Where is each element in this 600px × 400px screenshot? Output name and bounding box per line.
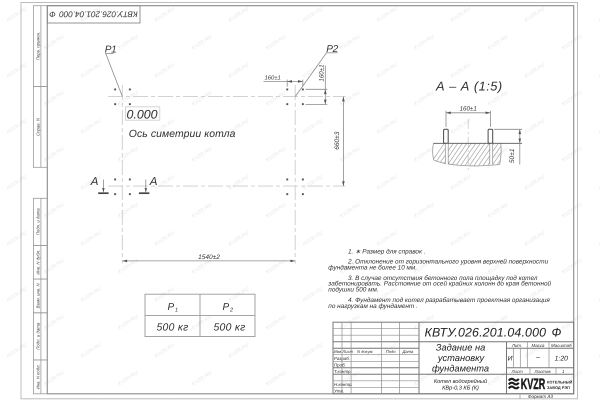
svg-text:A: A <box>90 176 99 188</box>
svg-text:–: – <box>535 354 540 361</box>
svg-text:A: A <box>149 176 158 188</box>
svg-text:Ф: Ф <box>49 10 56 19</box>
svg-text:160±1: 160±1 <box>265 74 281 81</box>
svg-text:Лист: Лист <box>342 349 354 354</box>
svg-text:Н.контр.: Н.контр. <box>334 382 353 387</box>
svg-text:Лист: Лист <box>511 369 524 374</box>
svg-text:P: P <box>223 302 230 313</box>
svg-text:Листов: Листов <box>534 369 552 374</box>
svg-text:фундамента: фундамента <box>432 363 489 373</box>
svg-text:КВТУ.026.201.04.000: КВТУ.026.201.04.000 <box>59 10 138 19</box>
svg-text:1540±2: 1540±2 <box>198 254 220 261</box>
svg-text:Лит.: Лит. <box>511 343 522 348</box>
svg-text:И: И <box>508 355 513 362</box>
svg-text:Изм.: Изм. <box>334 349 343 354</box>
svg-text:фундамента не более 10 мм.: фундамента не более 10 мм. <box>328 264 417 271</box>
svg-text:660±3: 660±3 <box>334 131 341 149</box>
svg-text:1:20: 1:20 <box>555 355 568 362</box>
svg-text:КВр-0,3 КБ (К): КВр-0,3 КБ (К) <box>442 385 479 392</box>
svg-text:Подп. и дата: Подп. и дата <box>35 208 40 236</box>
svg-text:Инв. N подл.: Инв. N подл. <box>35 364 40 389</box>
svg-text:подушки 500 мм.: подушки 500 мм. <box>328 287 378 294</box>
svg-text:Масштаб: Масштаб <box>551 343 572 348</box>
svg-text:P2: P2 <box>326 44 338 55</box>
svg-text:Подп.: Подп. <box>386 349 397 354</box>
svg-text:500 кг: 500 кг <box>213 322 245 333</box>
svg-text:А – А (1:5): А – А (1:5) <box>435 79 503 94</box>
svg-text:Масса: Масса <box>532 343 546 348</box>
svg-text:Ф: Ф <box>552 326 562 340</box>
svg-text:0.000: 0.000 <box>127 108 158 122</box>
svg-text:P: P <box>168 302 175 313</box>
svg-text:Инв. N дубл.: Инв. N дубл. <box>35 250 40 275</box>
svg-text:1: 1 <box>175 308 178 314</box>
svg-text:Формат А3: Формат А3 <box>528 394 554 399</box>
svg-text:Ось симетрии котла: Ось симетрии котла <box>129 129 236 140</box>
svg-text:Разраб.: Разраб. <box>334 356 350 361</box>
svg-text:160±1: 160±1 <box>318 64 325 81</box>
svg-text:Подп. и дата: Подп. и дата <box>35 322 40 350</box>
svg-text:установку: установку <box>437 353 486 363</box>
svg-text:KVZR: KVZR <box>521 376 546 393</box>
svg-text:1. ∗ Размер для справок .: 1. ∗ Размер для справок . <box>348 249 426 256</box>
svg-text:Котел водогрейный: Котел водогрейный <box>434 378 487 385</box>
svg-text:ЗАВОД РЭП: ЗАВОД РЭП <box>547 385 570 390</box>
svg-text:N докум.: N докум. <box>357 349 374 354</box>
svg-text:Утв.: Утв. <box>334 388 344 393</box>
svg-text:Взам. инв. N: Взам. инв. N <box>35 282 40 308</box>
svg-text:Т.контр.: Т.контр. <box>334 369 352 374</box>
svg-text:Дата: Дата <box>402 349 415 354</box>
svg-text:2: 2 <box>229 308 233 314</box>
svg-text:Справ. N: Справ. N <box>35 117 40 136</box>
svg-text:160±1: 160±1 <box>460 105 477 112</box>
svg-text:КВТУ.026.201.04.000: КВТУ.026.201.04.000 <box>425 326 547 340</box>
svg-text:Проб.: Проб. <box>334 362 346 367</box>
svg-text:50±1: 50±1 <box>509 148 516 163</box>
svg-text:по нагрузкам на фундамент .: по нагрузкам на фундамент . <box>328 303 417 310</box>
svg-text:500 кг: 500 кг <box>156 322 188 333</box>
svg-text:Перв. примен.: Перв. примен. <box>35 32 40 61</box>
svg-text:Задание на: Задание на <box>436 343 486 353</box>
svg-text:P1: P1 <box>105 44 116 55</box>
